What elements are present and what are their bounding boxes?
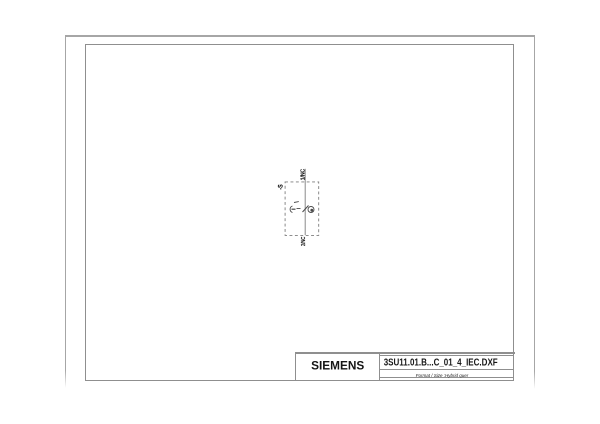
svg-text:3SU11.01.B...C_01_4_IEC.DXF: 3SU11.01.B...C_01_4_IEC.DXF (384, 357, 498, 368)
svg-text:2/NC: 2/NC (301, 237, 307, 246)
svg-text:Format / Size :Hybrid quer: Format / Size :Hybrid quer (416, 373, 469, 378)
svg-text:-S: -S (277, 184, 284, 189)
svg-text:1/NC: 1/NC (300, 169, 306, 181)
svg-text:SIEMENS: SIEMENS (311, 359, 364, 373)
